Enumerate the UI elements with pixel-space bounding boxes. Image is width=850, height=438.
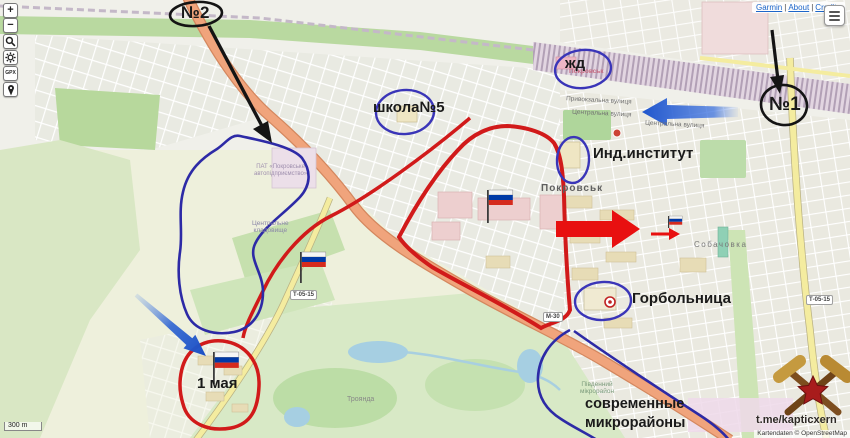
map-pin-icon xyxy=(6,84,16,96)
hamburger-icon xyxy=(829,19,840,21)
annotation-zhd: жд xyxy=(565,55,585,72)
scale-bar: 300 m xyxy=(4,422,42,431)
annotation-no1: №1 xyxy=(769,94,801,116)
gpx-button[interactable]: GPX xyxy=(3,66,18,81)
south-district-label: Південний мікрорайон xyxy=(580,381,614,396)
annotation-1-maya: 1 мая xyxy=(197,375,238,392)
map-attribution[interactable]: Kartendaten © OpenStreetMap xyxy=(754,430,850,438)
zoom-in-button[interactable]: + xyxy=(3,3,18,18)
annotation-modern-line2: микрорайоны xyxy=(585,414,685,433)
map-canvas[interactable] xyxy=(0,0,850,438)
hamburger-icon xyxy=(829,15,840,17)
link-garmin[interactable]: Garmin xyxy=(756,3,782,12)
annotation-hospital: Горбольница xyxy=(632,290,731,307)
link-separator: | xyxy=(784,3,786,12)
pat-enterprise-label: ПАТ «Покровське автопідприємство» xyxy=(254,164,307,178)
cemetery-label-line1: Центральне xyxy=(252,220,289,227)
pat-label-line1: ПАТ «Покровське xyxy=(254,164,307,171)
watermark-channel: t.me/kapticxern xyxy=(756,414,837,426)
gear-icon xyxy=(5,52,16,63)
district-label-troyanda: Троянда xyxy=(347,396,374,403)
pat-label-line2: автопідприємство» xyxy=(254,171,307,178)
road-shield-t0515-west: Т-05-15 xyxy=(290,290,317,300)
annotation-institute: Инд.институт xyxy=(593,145,693,162)
base-map xyxy=(0,0,850,438)
annotation-school: школа№5 xyxy=(373,99,445,116)
minus-icon: − xyxy=(7,20,13,31)
district-label-sobachovka: Собачовка xyxy=(694,240,747,249)
cemetery-label: Центральне кладовище xyxy=(252,220,289,235)
annotation-no2: №2 xyxy=(181,3,209,23)
settings-button[interactable] xyxy=(3,50,18,65)
hamburger-icon xyxy=(829,11,840,13)
search-icon xyxy=(5,36,16,47)
search-button[interactable] xyxy=(3,34,18,49)
cemetery-label-line2: кладовище xyxy=(252,227,289,234)
marker-button[interactable] xyxy=(3,82,18,97)
link-about[interactable]: About xyxy=(788,3,809,12)
map-screenshot: Покровськ Покровськ Собачовка Троянда Це… xyxy=(0,0,850,438)
menu-button[interactable] xyxy=(824,5,845,26)
city-label-pokrovsk: Покровськ xyxy=(541,183,603,194)
annotation-modern-line1: современные xyxy=(585,395,685,414)
road-shield-m30: М-30 xyxy=(543,312,563,322)
road-shield-t0515-east: Т-05-15 xyxy=(806,295,833,305)
gpx-icon: GPX xyxy=(5,71,16,76)
plus-icon: + xyxy=(7,5,13,16)
zoom-out-button[interactable]: − xyxy=(3,18,18,33)
link-separator: | xyxy=(811,3,813,12)
annotation-modern-districts: современные микрорайоны xyxy=(585,395,685,433)
